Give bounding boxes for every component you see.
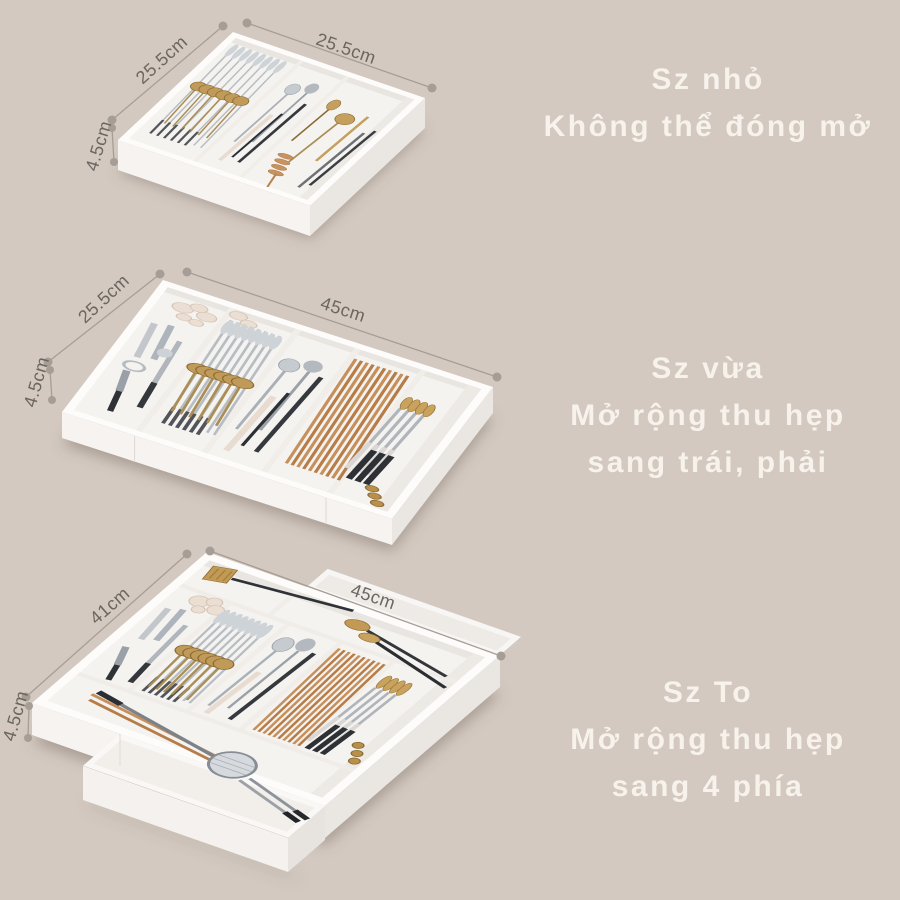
tray-large-top [0, 534, 521, 838]
caption-small: Sz nhỏ Không thể đóng mở [544, 56, 873, 150]
caption-medium-line1: Sz vừa [570, 345, 845, 392]
tray-large-illustration [0, 534, 521, 880]
caption-medium: Sz vừa Mở rộng thu hẹp sang trái, phải [570, 345, 845, 486]
caption-large-line3: sang 4 phía [570, 763, 845, 810]
caption-large-line2: Mở rộng thu hẹp [570, 716, 845, 763]
caption-medium-line2: Mở rộng thu hẹp [570, 392, 845, 439]
product-size-infographic: 25.5cm 25.5cm 4.5cm 25.5cm 45cm 4.5cm 41… [0, 0, 900, 900]
tray-medium-illustration [62, 280, 493, 551]
caption-large: Sz To Mở rộng thu hẹp sang 4 phía [570, 669, 845, 810]
caption-small-line1: Sz nhỏ [544, 56, 873, 103]
caption-small-line2: Không thể đóng mở [544, 103, 873, 150]
caption-large-line1: Sz To [570, 669, 845, 716]
caption-medium-line3: sang trái, phải [570, 439, 845, 486]
